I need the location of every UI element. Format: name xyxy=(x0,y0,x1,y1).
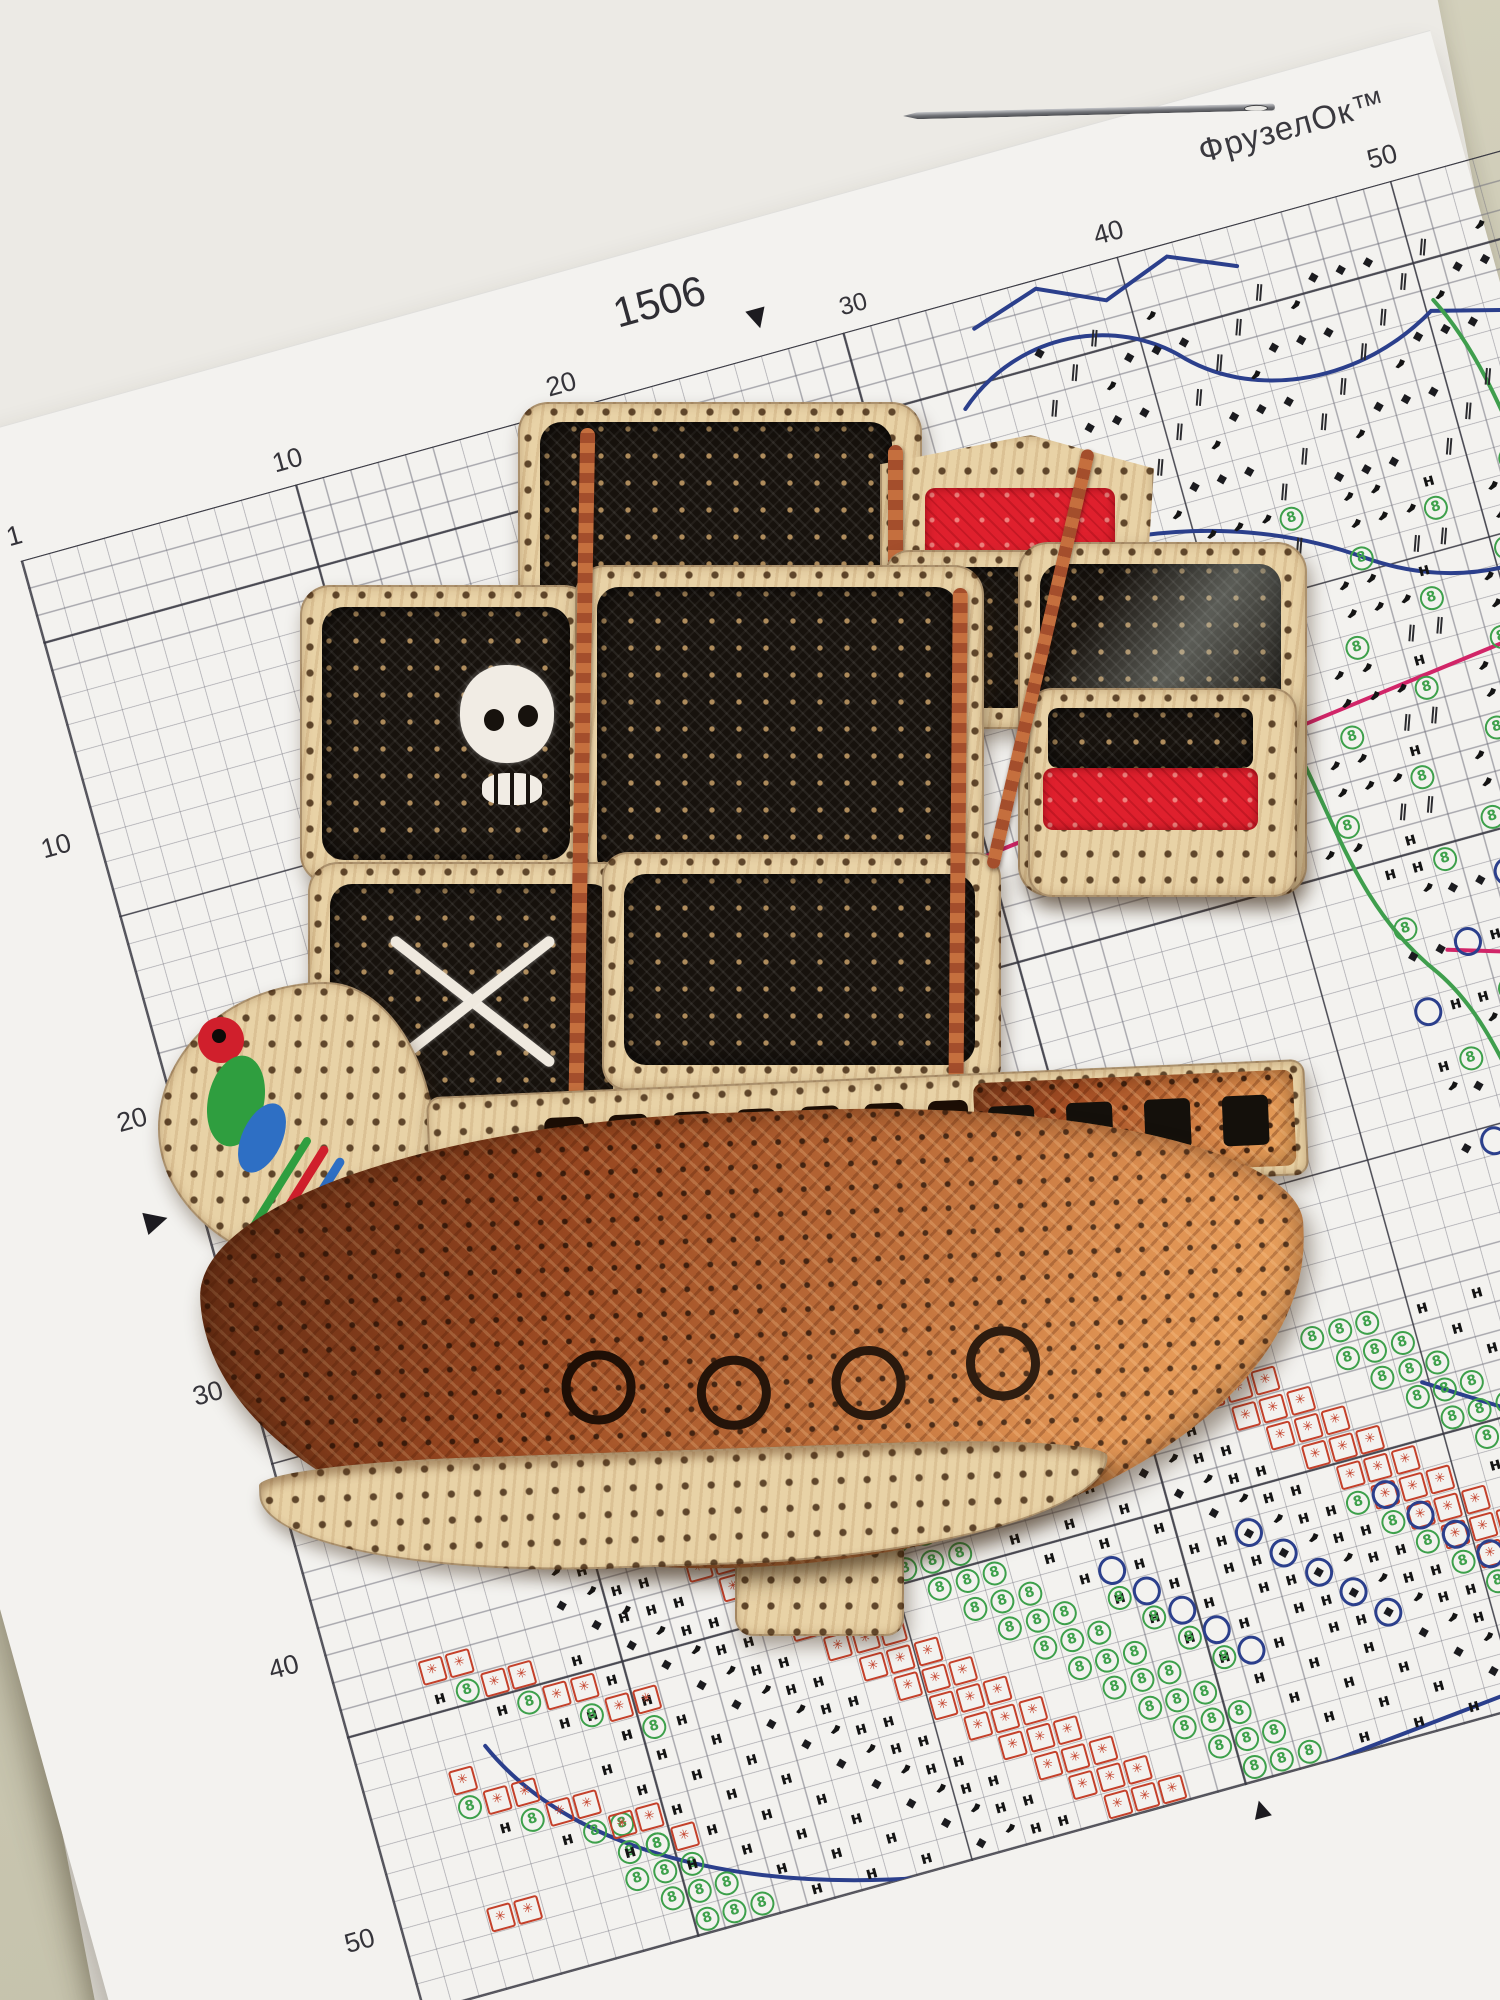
chart-symbol-h: н xyxy=(854,1856,888,1890)
chart-symbol-bluecircle xyxy=(1411,994,1445,1028)
chart-symbol-green8: 8 xyxy=(1454,1041,1488,1075)
photo-stage: ФрузелОк™ 1506 ▼ 30 ▶ ▲ 1102040501020304… xyxy=(0,0,1500,2000)
chart-symbol-green8: 8 xyxy=(1098,1670,1132,1704)
chart-symbol-redstar: ✳ xyxy=(477,1666,511,1700)
chart-symbol-redstar: ✳ xyxy=(511,1892,545,1926)
chart-symbol-redstar: ✳ xyxy=(1388,1443,1422,1477)
chart-symbol-h: н xyxy=(1456,1689,1490,1723)
chart-symbol-diamond: ◆ xyxy=(754,1707,788,1741)
chart-symbol-bluecircle xyxy=(1371,1595,1405,1629)
sail-lower-middle xyxy=(624,874,975,1065)
chart-symbol-slashes: ∥ xyxy=(1433,431,1463,461)
grid-label-top-30: 30 xyxy=(836,287,871,322)
chart-symbol-comma: ’ xyxy=(1340,423,1377,460)
chart-symbol-comma: ’ xyxy=(745,1678,782,1715)
chart-symbol-green8: 8 xyxy=(1133,1690,1167,1724)
chart-symbol-h: н xyxy=(730,1831,764,1865)
chart-symbol-diamond: ◆ xyxy=(1461,1069,1495,1103)
chart-symbol-comma: ’ xyxy=(1466,771,1500,808)
chart-symbol-h: н xyxy=(610,1717,644,1751)
chart-symbol-comma: ’ xyxy=(1433,1075,1470,1112)
chart-symbol-redstar: ✳ xyxy=(856,1649,890,1683)
chart-symbol-green8: 8 xyxy=(718,1894,752,1928)
chart-symbol-green8: 8 xyxy=(1463,1392,1497,1426)
chart-symbol-redstar: ✳ xyxy=(926,1689,960,1723)
chart-symbol-diamond: ◆ xyxy=(1022,336,1056,370)
chart-symbol-h: н xyxy=(1332,1664,1366,1698)
chart-symbol-green8: 8 xyxy=(1358,1333,1392,1367)
chart-symbol-h: н xyxy=(575,1698,609,1732)
flag2-black-rows xyxy=(1048,708,1253,768)
chart-symbol-comma: ’ xyxy=(955,1797,992,1834)
chart-symbol-green8: 8 xyxy=(1493,971,1500,1005)
chart-symbol-comma: ’ xyxy=(1468,564,1500,601)
chart-symbol-comma: ’ xyxy=(990,1817,1027,1854)
chart-symbol-redstar: ✳ xyxy=(445,1763,479,1797)
chart-symbol-comma: ’ xyxy=(1381,677,1418,714)
chart-symbol-redstar: ✳ xyxy=(1058,1740,1092,1774)
chart-symbol-diamond: ◆ xyxy=(1428,312,1462,346)
chart-symbol-redstar: ✳ xyxy=(1023,1721,1057,1755)
chart-symbol-green8: 8 xyxy=(1470,1420,1500,1454)
chart-symbol-comma: ’ xyxy=(1131,304,1168,341)
chart-symbol-green8: 8 xyxy=(640,1827,674,1861)
chart-symbol-green8: 8 xyxy=(450,1673,484,1707)
chart-symbol-slashes: ∥ xyxy=(1392,707,1422,737)
chart-symbol-h: н xyxy=(1407,553,1441,587)
chart-symbol-diamond: ◆ xyxy=(1468,242,1500,276)
chart-symbol-redstar: ✳ xyxy=(667,1819,701,1853)
chart-symbol-redstar: ✳ xyxy=(1066,1768,1100,1802)
chart-symbol-redstar: ✳ xyxy=(996,1728,1030,1762)
chart-symbol-comma: ’ xyxy=(1485,412,1500,449)
chart-symbol-green8: 8 xyxy=(1419,491,1453,525)
chart-symbol-h: н xyxy=(1391,1560,1425,1594)
chart-symbol-slashes: ∥ xyxy=(1401,528,1431,558)
chart-symbol-comma: ’ xyxy=(1356,478,1393,515)
chart-symbol-redstar: ✳ xyxy=(1128,1780,1162,1814)
chart-symbol-comma: ’ xyxy=(1391,497,1428,534)
chart-symbol-comma: ’ xyxy=(1459,213,1496,250)
chart-symbol-h: н xyxy=(836,1684,870,1718)
chart-symbol-comma: ’ xyxy=(815,1718,852,1755)
grid-label-left-40: 40 xyxy=(246,1648,302,1691)
chart-symbol-diamond: ◆ xyxy=(1167,325,1201,359)
chart-symbol-redstar: ✳ xyxy=(629,1682,663,1716)
skull-eye-left xyxy=(484,709,504,731)
chart-symbol-h: н xyxy=(680,1757,714,1791)
chart-symbol-slashes: ∥ xyxy=(1059,358,1089,388)
chart-symbol-green8: 8 xyxy=(578,1815,612,1849)
chart-symbol-h: н xyxy=(613,1834,647,1868)
chart-symbol-h: н xyxy=(1352,1630,1386,1664)
pattern-code: 1506 xyxy=(608,266,711,337)
chart-symbol-redstar: ✳ xyxy=(1120,1753,1154,1787)
chart-symbol-comma: ’ xyxy=(885,1757,922,1794)
chart-symbol-redstar: ✳ xyxy=(508,1775,542,1809)
wood-skull-sail xyxy=(300,585,594,884)
chart-symbol-diamond: ◆ xyxy=(1396,939,1430,973)
chart-symbol-diamond: ◆ xyxy=(1349,451,1383,485)
chart-symbol-h: н xyxy=(1419,1552,1453,1586)
chart-symbol-h: н xyxy=(645,1737,679,1771)
chart-symbol-green8: 8 xyxy=(1410,670,1444,704)
chart-symbol-green8: 8 xyxy=(1480,710,1500,744)
chart-symbol-green8: 8 xyxy=(575,1698,609,1732)
chart-symbol-green8: 8 xyxy=(1490,1385,1500,1419)
chart-symbol-diamond: ◆ xyxy=(1361,389,1395,423)
chart-symbol-h: н xyxy=(784,1816,818,1850)
grid-label-top-20: 20 xyxy=(543,366,580,404)
chart-symbol-green8: 8 xyxy=(1428,1373,1462,1407)
chart-symbol-bluecircle xyxy=(1438,1517,1472,1551)
center-top-marker: ▼ xyxy=(736,294,779,341)
chart-symbol-green8: 8 xyxy=(1350,1306,1384,1340)
chart-symbol-comma: ’ xyxy=(1491,646,1500,683)
chart-symbol-comma: ’ xyxy=(1336,513,1373,550)
chart-symbol-redstar: ✳ xyxy=(1016,1693,1050,1727)
chart-symbol-diamond: ◆ xyxy=(894,1786,928,1820)
chart-symbol-h: н xyxy=(909,1841,943,1875)
chart-symbol-bluecircle xyxy=(1451,924,1485,958)
chart-symbol-h: н xyxy=(1019,1810,1053,1844)
chart-symbol-comma: ’ xyxy=(1463,654,1500,691)
chart-symbol-diamond: ◆ xyxy=(1371,1595,1405,1629)
chart-symbol-green8: 8 xyxy=(637,1710,671,1744)
chart-symbol-comma: ’ xyxy=(1363,1566,1400,1603)
chart-symbol-h: н xyxy=(590,1752,624,1786)
chart-symbol-h: н xyxy=(595,1663,629,1697)
chart-symbol-h: н xyxy=(879,1731,913,1765)
chart-symbol-h: н xyxy=(1402,1704,1436,1738)
chart-symbol-green8: 8 xyxy=(1063,1651,1097,1685)
chart-symbol-green8: 8 xyxy=(1388,912,1422,946)
chart-symbol-green8: 8 xyxy=(1411,1525,1445,1559)
chart-symbol-comma: ’ xyxy=(1351,567,1388,604)
chart-symbol-green8: 8 xyxy=(1292,1734,1326,1768)
chart-symbol-h: н xyxy=(1011,1783,1045,1817)
chart-symbol-green8: 8 xyxy=(1335,720,1369,754)
center-bottom-marker: ▲ xyxy=(1242,1788,1280,1829)
chart-symbol-green8: 8 xyxy=(512,1685,546,1719)
chart-symbol-diamond: ◆ xyxy=(1401,319,1435,353)
chart-symbol-comma: ’ xyxy=(1349,774,1386,811)
chart-symbol-h: н xyxy=(1349,1512,1383,1546)
chart-symbol-redstar: ✳ xyxy=(1458,1482,1492,1516)
chart-symbol-green8: 8 xyxy=(1393,1353,1427,1387)
chart-symbol-h: н xyxy=(1495,1295,1500,1329)
chart-symbol-h: н xyxy=(984,1790,1018,1824)
chart-symbol-h: н xyxy=(1373,857,1407,891)
chart-symbol-redstar: ✳ xyxy=(570,1787,604,1821)
chart-symbol-diamond: ◆ xyxy=(1256,330,1290,364)
chart-symbol-green8: 8 xyxy=(1385,1325,1419,1359)
grid-label-top-1: 1 xyxy=(3,519,26,553)
chart-symbol-slashes: ∥ xyxy=(1397,618,1427,648)
chart-symbol-diamond: ◆ xyxy=(1449,1131,1483,1165)
chart-symbol-green8: 8 xyxy=(1376,1505,1410,1539)
chart-symbol-h: н xyxy=(1488,1592,1500,1626)
chart-symbol-h: н xyxy=(695,1812,729,1846)
chart-symbol-h: н xyxy=(976,1763,1010,1797)
chart-symbol-diamond: ◆ xyxy=(824,1746,858,1780)
grid-label-top-50: 50 xyxy=(1364,138,1401,176)
chart-symbol-comma: ’ xyxy=(1471,681,1500,718)
chart-symbol-h: н xyxy=(1411,464,1445,498)
chart-symbol-h: н xyxy=(1393,822,1427,856)
chart-symbol-slashes: ∥ xyxy=(1388,797,1418,827)
chart-symbol-green8: 8 xyxy=(1195,1702,1229,1736)
chart-symbol-h: н xyxy=(839,1801,873,1835)
chart-symbol-h: н xyxy=(739,1652,773,1686)
chart-symbol-bluecircle xyxy=(1368,1477,1402,1511)
chart-symbol-diamond: ◆ xyxy=(1376,444,1410,478)
chart-symbol-redstar: ✳ xyxy=(1423,1462,1457,1496)
parrot-eye xyxy=(212,1029,226,1043)
chart-symbol-bluecircle xyxy=(1473,1537,1500,1571)
chart-symbol-comma: ’ xyxy=(1363,505,1400,542)
chart-symbol-comma: ’ xyxy=(1420,283,1457,320)
chart-symbol-green8: 8 xyxy=(613,1834,647,1868)
chart-symbol-diamond: ◆ xyxy=(1423,932,1457,966)
chart-symbol-redstar: ✳ xyxy=(602,1690,636,1724)
grid-label-left-10: 10 xyxy=(18,827,74,870)
chart-symbol-slashes: ∥ xyxy=(1424,610,1454,640)
chart-symbol-redstar: ✳ xyxy=(442,1646,476,1680)
chart-symbol-redstar: ✳ xyxy=(1361,1450,1395,1484)
chart-symbol-h: н xyxy=(1478,1447,1500,1481)
chart-symbol-diamond: ◆ xyxy=(1139,333,1173,367)
chart-symbol-redstar: ✳ xyxy=(543,1795,577,1829)
chart-symbol-green8: 8 xyxy=(1455,1365,1489,1399)
grid-label-left-50: 50 xyxy=(322,1922,378,1965)
chart-symbol-h: н xyxy=(949,1771,983,1805)
chart-symbol-comma: ’ xyxy=(1236,364,1273,401)
chart-symbol-diamond: ◆ xyxy=(859,1766,893,1800)
chart-symbol-green8: 8 xyxy=(1484,620,1500,654)
chart-symbol-h: н xyxy=(550,1822,584,1856)
chart-symbol-comma: ’ xyxy=(1494,764,1500,801)
chart-symbol-redstar: ✳ xyxy=(953,1681,987,1715)
chart-symbol-h: н xyxy=(765,1851,799,1885)
chart-symbol-redstar: ✳ xyxy=(1438,1517,1472,1551)
chart-symbol-redstar: ✳ xyxy=(1031,1748,1065,1782)
chart-symbol-slashes: ∥ xyxy=(1473,361,1500,391)
chart-symbol-comma: ’ xyxy=(1354,684,1391,721)
chart-symbol-comma: ’ xyxy=(1380,353,1417,390)
chart-symbol-h: н xyxy=(1440,1310,1474,1344)
chart-symbol-h: н xyxy=(871,1704,905,1738)
chart-symbol-h: н xyxy=(1475,1330,1500,1364)
chart-symbol-green8: 8 xyxy=(1168,1710,1202,1744)
chart-symbol-comma: ’ xyxy=(1377,767,1414,804)
chart-symbol-green8: 8 xyxy=(1341,1485,1375,1519)
chart-symbol-redstar: ✳ xyxy=(981,1673,1015,1707)
grid-label-left-20: 20 xyxy=(94,1101,150,1144)
chart-symbol-comma: ’ xyxy=(920,1777,957,1814)
chart-symbol-redstar: ✳ xyxy=(1086,1733,1120,1767)
chart-symbol-comma: ’ xyxy=(1459,744,1496,781)
skull-eye-right xyxy=(518,705,538,727)
chart-symbol-h: н xyxy=(1461,1599,1495,1633)
chart-symbol-h: н xyxy=(629,1682,663,1716)
chart-symbol-green8: 8 xyxy=(690,1901,724,1935)
skull-jaw xyxy=(482,773,542,805)
chart-symbol-diamond: ◆ xyxy=(1112,340,1146,374)
chart-symbol-h: н xyxy=(906,1724,940,1758)
chart-symbol-comma: ’ xyxy=(1472,1005,1500,1042)
chart-symbol-comma: ’ xyxy=(850,1738,887,1775)
chart-symbol-redstar: ✳ xyxy=(1368,1477,1402,1511)
chart-symbol-diamond: ◆ xyxy=(1463,862,1497,896)
chart-symbol-h: н xyxy=(1466,979,1500,1013)
chart-symbol-green8: 8 xyxy=(605,1807,639,1841)
chart-symbol-redstar: ✳ xyxy=(505,1658,539,1692)
chart-symbol-diamond: ◆ xyxy=(964,1825,998,1859)
chart-symbol-h: н xyxy=(423,1681,457,1715)
chart-symbol-h: н xyxy=(914,1751,948,1785)
chart-symbol-green8: 8 xyxy=(648,1854,682,1888)
chart-symbol-redstar: ✳ xyxy=(1101,1788,1135,1822)
chart-symbol-diamond: ◆ xyxy=(1440,249,1474,283)
chart-symbol-slashes: ∥ xyxy=(1493,326,1500,356)
chart-symbol-comma: ’ xyxy=(1275,294,1312,331)
chart-symbol-h: н xyxy=(1312,1699,1346,1733)
chart-symbol-green8: 8 xyxy=(1414,581,1448,615)
chart-symbol-h: н xyxy=(1401,850,1435,884)
chart-symbol-comma: ’ xyxy=(1486,736,1500,773)
chart-symbol-diamond: ◆ xyxy=(1323,252,1357,286)
chart-symbol-h: н xyxy=(750,1796,784,1830)
chart-symbol-redstar: ✳ xyxy=(1155,1772,1189,1806)
chart-symbol-h: н xyxy=(610,1717,644,1751)
chart-symbol-diamond: ◆ xyxy=(1389,381,1423,415)
chart-symbol-h: н xyxy=(1344,1602,1378,1636)
chart-symbol-comma: ’ xyxy=(1337,836,1374,873)
chart-symbol-h: н xyxy=(734,1742,768,1776)
chart-symbol-h: н xyxy=(547,1705,581,1739)
chart-symbol-h: н xyxy=(1426,1049,1460,1083)
chart-symbol-comma: ’ xyxy=(711,1659,748,1696)
chart-symbol-diamond: ◆ xyxy=(1476,1654,1500,1688)
chart-symbol-h: н xyxy=(675,1847,709,1881)
chart-symbol-h: н xyxy=(1426,1579,1460,1613)
chart-symbol-comma: ’ xyxy=(1473,475,1500,512)
chart-symbol-h: н xyxy=(809,1692,843,1726)
chart-symbol-comma: ’ xyxy=(1468,1625,1500,1662)
chart-symbol-diamond: ◆ xyxy=(1416,374,1450,408)
chart-symbol-green8: 8 xyxy=(1405,760,1439,794)
chart-symbol-diamond: ◆ xyxy=(1406,1614,1440,1648)
chart-symbol-h: н xyxy=(660,1792,694,1826)
chart-symbol-green8: 8 xyxy=(1340,631,1374,665)
chart-symbol-h: н xyxy=(1478,917,1500,951)
chart-symbol-h: н xyxy=(1367,1684,1401,1718)
chart-symbol-slashes: ∥ xyxy=(1420,700,1450,730)
chart-symbol-diamond: ◆ xyxy=(1311,315,1345,349)
chart-symbol-comma: ’ xyxy=(1495,557,1500,594)
chart-symbol-diamond: ◆ xyxy=(929,1806,963,1840)
chart-symbol-h: н xyxy=(1398,733,1432,767)
chart-symbol-comma: ’ xyxy=(1433,1606,1470,1643)
chart-symbol-redstar: ✳ xyxy=(1473,1537,1500,1571)
chart-symbol-redstar: ✳ xyxy=(605,1807,639,1841)
chart-symbol-redstar: ✳ xyxy=(540,1678,574,1712)
chart-symbol-comma: ’ xyxy=(780,1698,817,1735)
chart-symbol-h: н xyxy=(941,1743,975,1777)
sail-middle xyxy=(597,587,958,878)
chart-symbol-h: н xyxy=(485,1693,519,1727)
chart-symbol-h: н xyxy=(874,1821,908,1855)
chart-symbol-h: н xyxy=(1242,1660,1276,1694)
chart-symbol-h: н xyxy=(1356,1540,1390,1574)
chart-symbol-green8: 8 xyxy=(1238,1750,1272,1784)
chart-symbol-h: н xyxy=(1460,1275,1494,1309)
chart-symbol-green8: 8 xyxy=(1257,1715,1291,1749)
chart-symbol-h: н xyxy=(774,1672,808,1706)
chart-symbol-h: н xyxy=(1439,986,1473,1020)
brand-trademark: ФрузелОк™ xyxy=(1194,82,1390,170)
chart-symbol-diamond: ◆ xyxy=(684,1667,718,1701)
chart-symbol-green8: 8 xyxy=(1230,1722,1264,1756)
chart-symbol-green8: 8 xyxy=(1481,1564,1500,1598)
chart-symbol-diamond: ◆ xyxy=(719,1687,753,1721)
chart-symbol-h: н xyxy=(625,1772,659,1806)
chart-symbol-comma: ’ xyxy=(1480,502,1500,539)
chart-symbol-green8: 8 xyxy=(1203,1730,1237,1764)
chart-symbol-redstar: ✳ xyxy=(1466,1509,1500,1543)
chart-symbol-slashes: ∥ xyxy=(1388,267,1418,297)
grid-label-top-40: 40 xyxy=(1090,214,1127,252)
chart-symbol-redstar: ✳ xyxy=(946,1654,980,1688)
wooden-ship-blank xyxy=(150,400,1340,1650)
chart-symbol-bluecircle xyxy=(1403,1497,1437,1531)
chart-symbol-bluecircle xyxy=(1336,1575,1370,1609)
chart-symbol-green8: 8 xyxy=(710,1866,744,1900)
chart-symbol-h: н xyxy=(664,1702,698,1736)
chart-symbol-h: н xyxy=(769,1762,803,1796)
chart-symbol-slashes: ∥ xyxy=(1415,790,1445,820)
chart-symbol-h: н xyxy=(1496,1619,1500,1653)
chart-symbol-green8: 8 xyxy=(1435,1400,1469,1434)
chart-symbol-diamond: ◆ xyxy=(1436,869,1470,903)
chart-symbol-redstar: ✳ xyxy=(567,1670,601,1704)
chart-symbol-redstar: ✳ xyxy=(415,1653,449,1687)
chart-symbol-slashes: ∥ xyxy=(1368,302,1398,332)
chart-symbol-redstar: ✳ xyxy=(483,1900,517,1934)
chart-symbol-diamond: ◆ xyxy=(1296,260,1330,294)
chart-symbol-h: н xyxy=(1405,1291,1439,1325)
chart-symbol-redstar: ✳ xyxy=(961,1708,995,1742)
chart-symbol-green8: 8 xyxy=(675,1847,709,1881)
chart-symbol-green8: 8 xyxy=(515,1802,549,1836)
skull-motif xyxy=(460,665,554,763)
chart-symbol-h: н xyxy=(800,1871,834,1905)
chart-symbol-redstar: ✳ xyxy=(480,1783,514,1817)
chart-symbol-h: н xyxy=(488,1810,522,1844)
chart-symbol-green8: 8 xyxy=(453,1790,487,1824)
chart-symbol-h: н xyxy=(1453,1572,1487,1606)
chart-symbol-slashes: ∥ xyxy=(1224,312,1254,342)
chart-symbol-h: н xyxy=(844,1711,878,1745)
chart-symbol-h: н xyxy=(1384,1532,1418,1566)
chart-symbol-green8: 8 xyxy=(683,1874,717,1908)
chart-symbol-green8: 8 xyxy=(1475,800,1500,834)
chart-symbol-diamond: ◆ xyxy=(789,1727,823,1761)
chart-symbol-diamond: ◆ xyxy=(1284,322,1318,356)
chart-symbol-slashes: ∥ xyxy=(1453,396,1483,426)
chart-symbol-diamond: ◆ xyxy=(1351,245,1385,279)
